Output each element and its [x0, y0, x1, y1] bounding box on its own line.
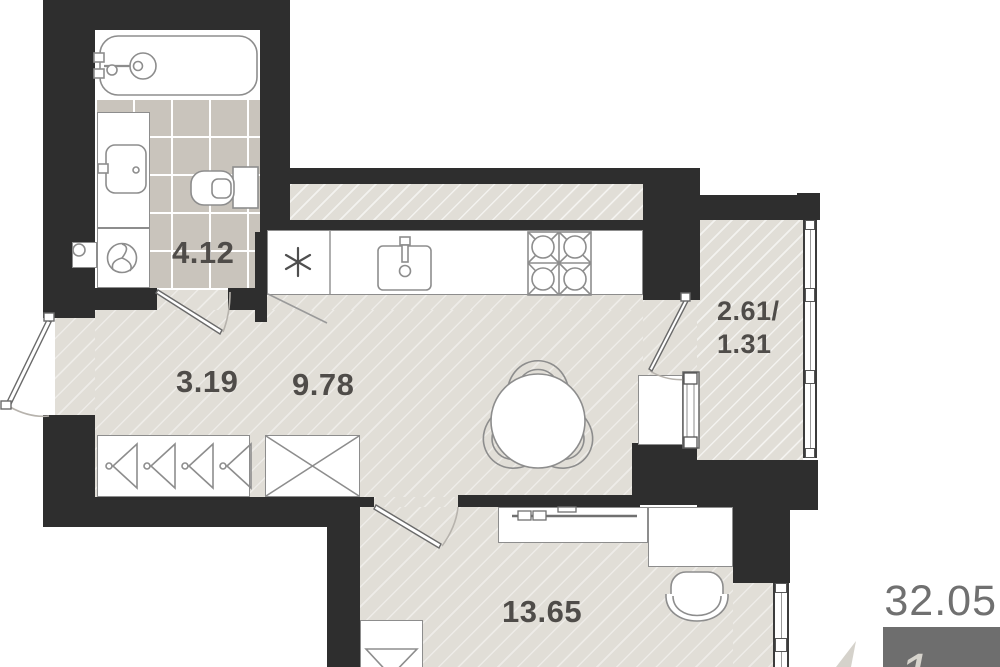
washing-machine-box — [97, 228, 150, 288]
desk — [648, 507, 733, 567]
window-mullion — [775, 638, 787, 652]
balcony-area-label: 2.61/1.31 — [717, 295, 780, 361]
wall-left-upper — [43, 0, 95, 318]
tv-console — [498, 507, 648, 543]
badge-number: 1 — [899, 645, 930, 667]
balcony-window — [803, 220, 817, 458]
wall-living-right-pier — [733, 510, 790, 583]
wall-kitchen-top — [290, 168, 643, 184]
window-mullion — [805, 220, 815, 230]
living-window — [773, 583, 789, 667]
hallway-area-label: 3.19 — [176, 366, 238, 399]
bathroom-area-label: 4.12 — [172, 237, 234, 270]
wall-living-top — [458, 495, 640, 507]
utility-meter-niche — [72, 242, 97, 268]
window-sill-cabinet — [638, 375, 683, 445]
window-mullion — [805, 288, 815, 302]
wall-balcony-bottom — [697, 460, 818, 510]
wall-kitchen-balcony — [643, 168, 700, 300]
wall-hall-bottom-stub — [360, 497, 374, 507]
bed — [360, 620, 423, 667]
kitchen-vent-strip — [290, 184, 643, 220]
storage-closet — [265, 435, 360, 497]
kitchen-counter — [267, 230, 643, 295]
entrance-door — [1, 313, 54, 416]
wall-bathroom-right — [260, 0, 290, 232]
position-badge: 1 — [883, 627, 1000, 667]
living-door-threshold-floor — [374, 497, 458, 507]
wall-hall-bottom — [43, 497, 360, 527]
living-area-label: 13.65 — [502, 596, 582, 629]
living-floor-right — [733, 583, 773, 667]
kitchen-floor — [267, 295, 643, 310]
kitchen-area-label: 9.78 — [292, 369, 354, 402]
window-mullion — [805, 448, 815, 458]
window-mullion — [775, 583, 787, 593]
window-mullion — [805, 370, 815, 384]
wall-balcony-top — [697, 195, 800, 220]
north-arrow-icon — [836, 641, 856, 667]
balcony-area-line1: 2.61/ — [717, 296, 780, 326]
floorplan: 4.12 3.19 9.78 2.61/1.31 13.65 32.05 1 — [0, 0, 1000, 667]
bathtub-zone-floor — [95, 30, 260, 100]
wardrobe — [97, 435, 250, 497]
total-area-label: 32.05 — [800, 577, 997, 626]
balcony-area-line2: 1.31 — [717, 329, 772, 359]
bathroom-threshold-floor — [157, 290, 228, 310]
bathroom-sink-counter — [97, 112, 150, 228]
wall-bathroom-bottom-left — [95, 288, 157, 310]
wall-balcony-top-corner — [797, 193, 820, 220]
wall-under-balcony-window — [632, 443, 697, 505]
wall-bathroom-bottom-right — [228, 288, 260, 310]
wall-living-left — [327, 527, 360, 667]
entrance-threshold-floor — [55, 318, 95, 415]
